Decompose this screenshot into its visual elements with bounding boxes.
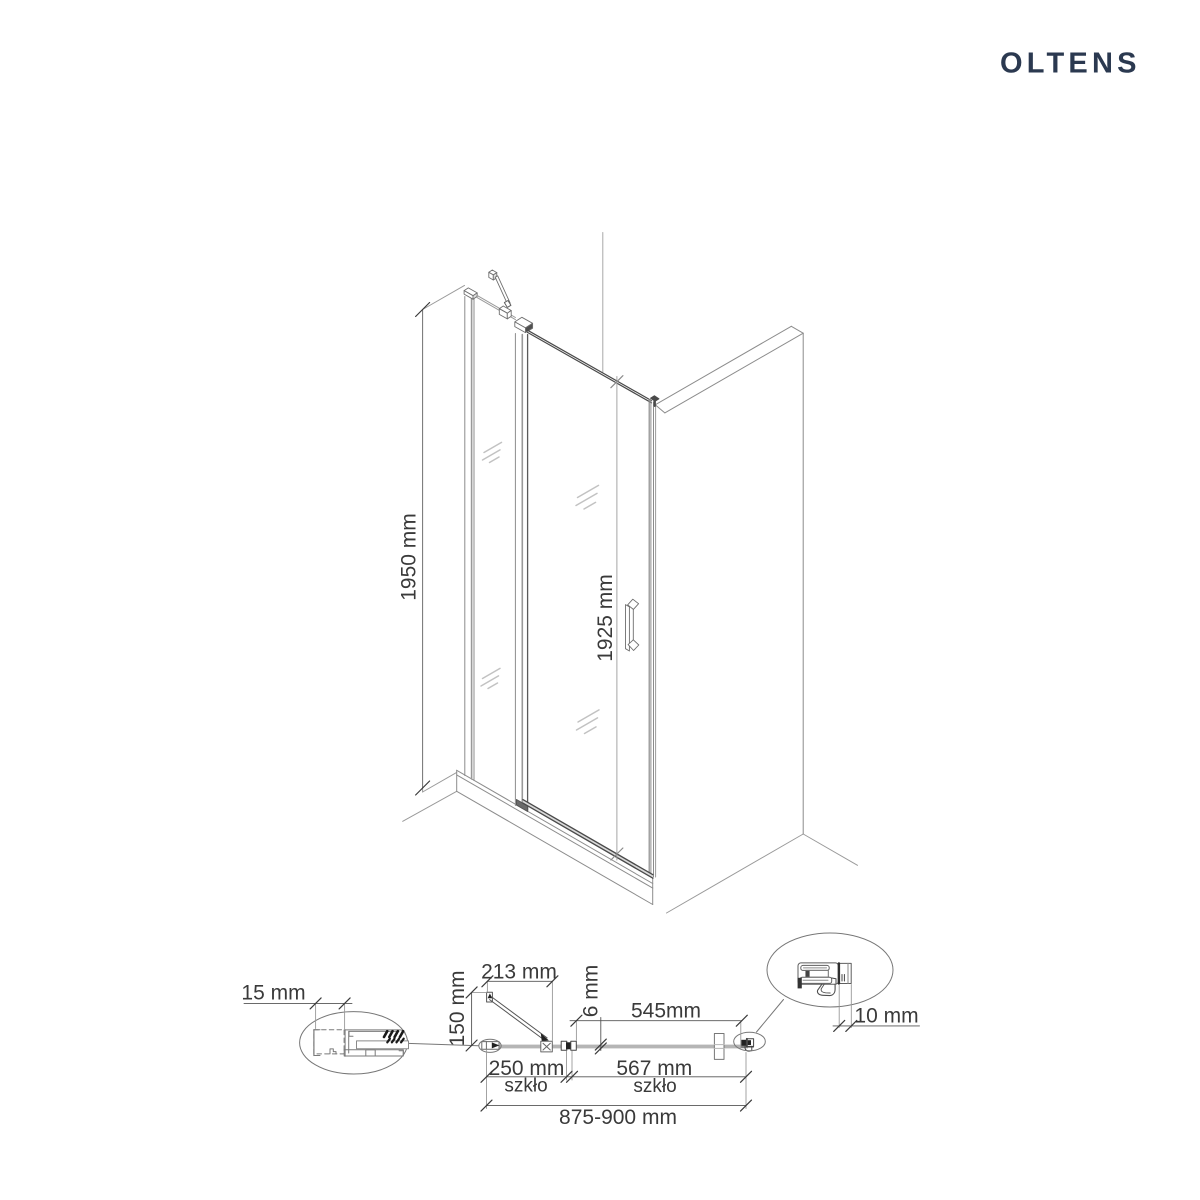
svg-text:szkło: szkło [633, 1076, 676, 1097]
svg-text:15 mm: 15 mm [241, 982, 305, 1005]
svg-text:1925 mm: 1925 mm [594, 574, 617, 662]
svg-text:545mm: 545mm [631, 1000, 701, 1023]
svg-text:szkło: szkło [504, 1076, 547, 1097]
svg-text:1950 mm: 1950 mm [398, 513, 421, 601]
svg-text:150 mm: 150 mm [446, 971, 469, 1047]
svg-text:6 mm: 6 mm [580, 965, 603, 1018]
svg-text:213 mm: 213 mm [481, 961, 557, 984]
svg-text:OLTENS: OLTENS [1000, 48, 1141, 80]
svg-text:875-900 mm: 875-900 mm [559, 1106, 677, 1129]
svg-text:10 mm: 10 mm [854, 1005, 918, 1028]
